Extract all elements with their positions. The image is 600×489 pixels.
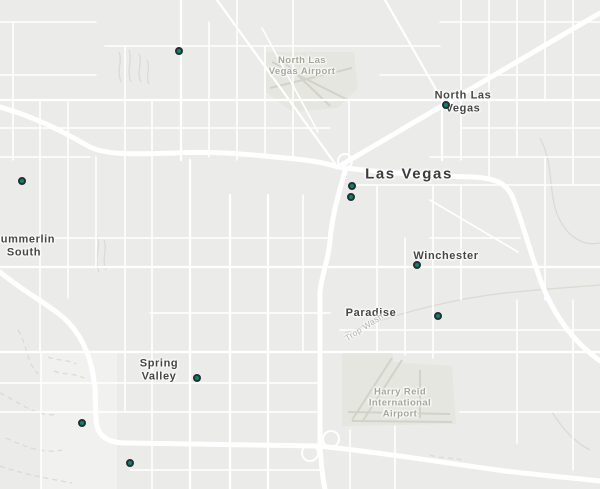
- map-marker[interactable]: [193, 374, 201, 382]
- road-network: [0, 0, 600, 489]
- map-marker[interactable]: [434, 312, 442, 320]
- map-marker[interactable]: [413, 261, 421, 269]
- map-marker[interactable]: [347, 193, 355, 201]
- map-marker[interactable]: [78, 419, 86, 427]
- map-canvas[interactable]: North LasVegas AirportNorth LasVegasLas …: [0, 0, 600, 489]
- us95-west: [0, 107, 338, 167]
- map-marker[interactable]: [126, 459, 134, 467]
- map-marker[interactable]: [442, 101, 450, 109]
- map-marker[interactable]: [18, 177, 26, 185]
- map-marker[interactable]: [348, 182, 356, 190]
- i515-northeast: [338, 13, 600, 167]
- map-marker[interactable]: [175, 47, 183, 55]
